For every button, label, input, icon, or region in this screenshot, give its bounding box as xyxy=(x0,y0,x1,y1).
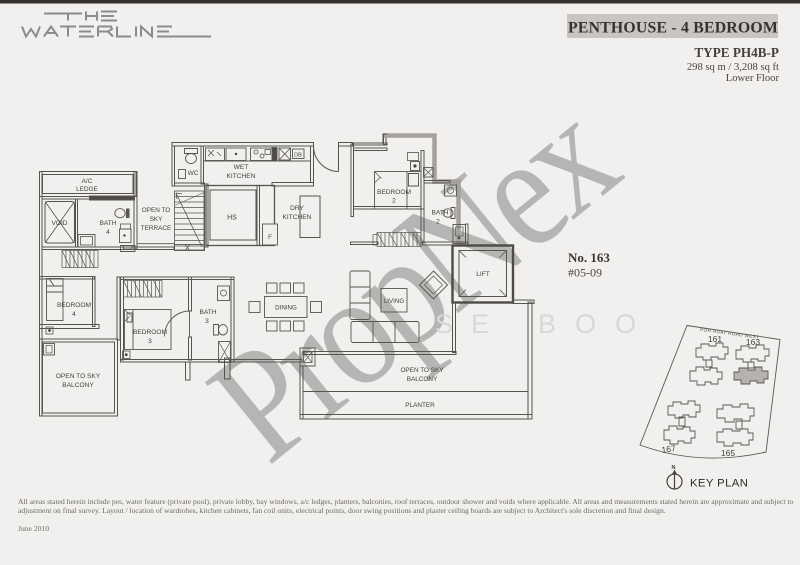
svg-text:DB: DB xyxy=(294,153,302,159)
svg-text:KITCHEN: KITCHEN xyxy=(283,214,312,221)
svg-text:OPEN TO SKY: OPEN TO SKY xyxy=(400,367,444,374)
svg-text:3: 3 xyxy=(148,338,152,345)
svg-text:E: E xyxy=(471,309,489,339)
svg-text:161: 161 xyxy=(708,334,722,344)
svg-text:B: B xyxy=(538,309,556,339)
svg-text:3: 3 xyxy=(205,318,209,325)
svg-text:LIFT: LIFT xyxy=(476,271,490,278)
svg-text:BEDROOM: BEDROOM xyxy=(57,302,91,309)
svg-text:LEDGE: LEDGE xyxy=(76,186,98,193)
svg-text:VOID: VOID xyxy=(51,220,67,227)
svg-text:PENTHOUSE - 4 BEDROOM: PENTHOUSE - 4 BEDROOM xyxy=(568,20,778,37)
svg-text:BATH: BATH xyxy=(431,210,448,217)
svg-text:F: F xyxy=(268,234,272,241)
svg-text:N: N xyxy=(672,465,676,471)
svg-text:BALCONY: BALCONY xyxy=(407,376,438,383)
svg-text:S: S xyxy=(435,309,453,339)
svg-text:OPEN TO: OPEN TO xyxy=(142,207,171,214)
svg-text:PLANTER: PLANTER xyxy=(405,402,435,409)
svg-text:HS: HS xyxy=(227,215,237,222)
svg-text:WET: WET xyxy=(234,164,249,171)
svg-text:#05-09: #05-09 xyxy=(568,266,602,280)
svg-text:O: O xyxy=(575,309,596,339)
svg-text:O: O xyxy=(615,309,636,339)
svg-text:298 sq m / 3,208 sq ft: 298 sq m / 3,208 sq ft xyxy=(687,62,779,73)
svg-text:TERRACE: TERRACE xyxy=(141,225,172,232)
svg-text:No. 163: No. 163 xyxy=(568,250,610,265)
svg-text:163: 163 xyxy=(746,337,760,347)
svg-text:LIVING: LIVING xyxy=(384,298,404,305)
svg-text:June 2010: June 2010 xyxy=(18,524,49,533)
svg-text:DINING: DINING xyxy=(275,305,297,312)
svg-text:167: 167 xyxy=(661,443,677,455)
svg-text:165: 165 xyxy=(721,448,735,458)
svg-text:WC: WC xyxy=(188,170,199,177)
svg-text:BALCONY: BALCONY xyxy=(62,382,94,389)
svg-text:4: 4 xyxy=(106,229,110,236)
svg-text:2: 2 xyxy=(436,219,440,226)
svg-text:KEY PLAN: KEY PLAN xyxy=(690,478,748,490)
svg-text:4: 4 xyxy=(72,311,76,318)
svg-text:BATH: BATH xyxy=(99,220,116,227)
svg-text:OPEN TO SKY: OPEN TO SKY xyxy=(56,373,101,380)
svg-text:adjustment on final survey. La: adjustment on final survey. Layout / loc… xyxy=(18,506,666,515)
svg-text:DRY: DRY xyxy=(290,205,304,212)
svg-text:SKY: SKY xyxy=(150,216,164,223)
svg-text:TYPE PH4B-P: TYPE PH4B-P xyxy=(694,45,779,60)
svg-text:KITCHEN: KITCHEN xyxy=(227,173,256,180)
svg-text:Lower Floor: Lower Floor xyxy=(726,73,780,84)
svg-text:A/C: A/C xyxy=(82,178,93,185)
svg-text:All areas stated herein includ: All areas stated herein include pes, wat… xyxy=(18,497,793,506)
svg-text:BEDROOM: BEDROOM xyxy=(377,189,411,196)
svg-text:BEDROOM: BEDROOM xyxy=(133,329,167,336)
svg-text:BATH: BATH xyxy=(199,309,216,316)
svg-text:2: 2 xyxy=(392,198,396,205)
